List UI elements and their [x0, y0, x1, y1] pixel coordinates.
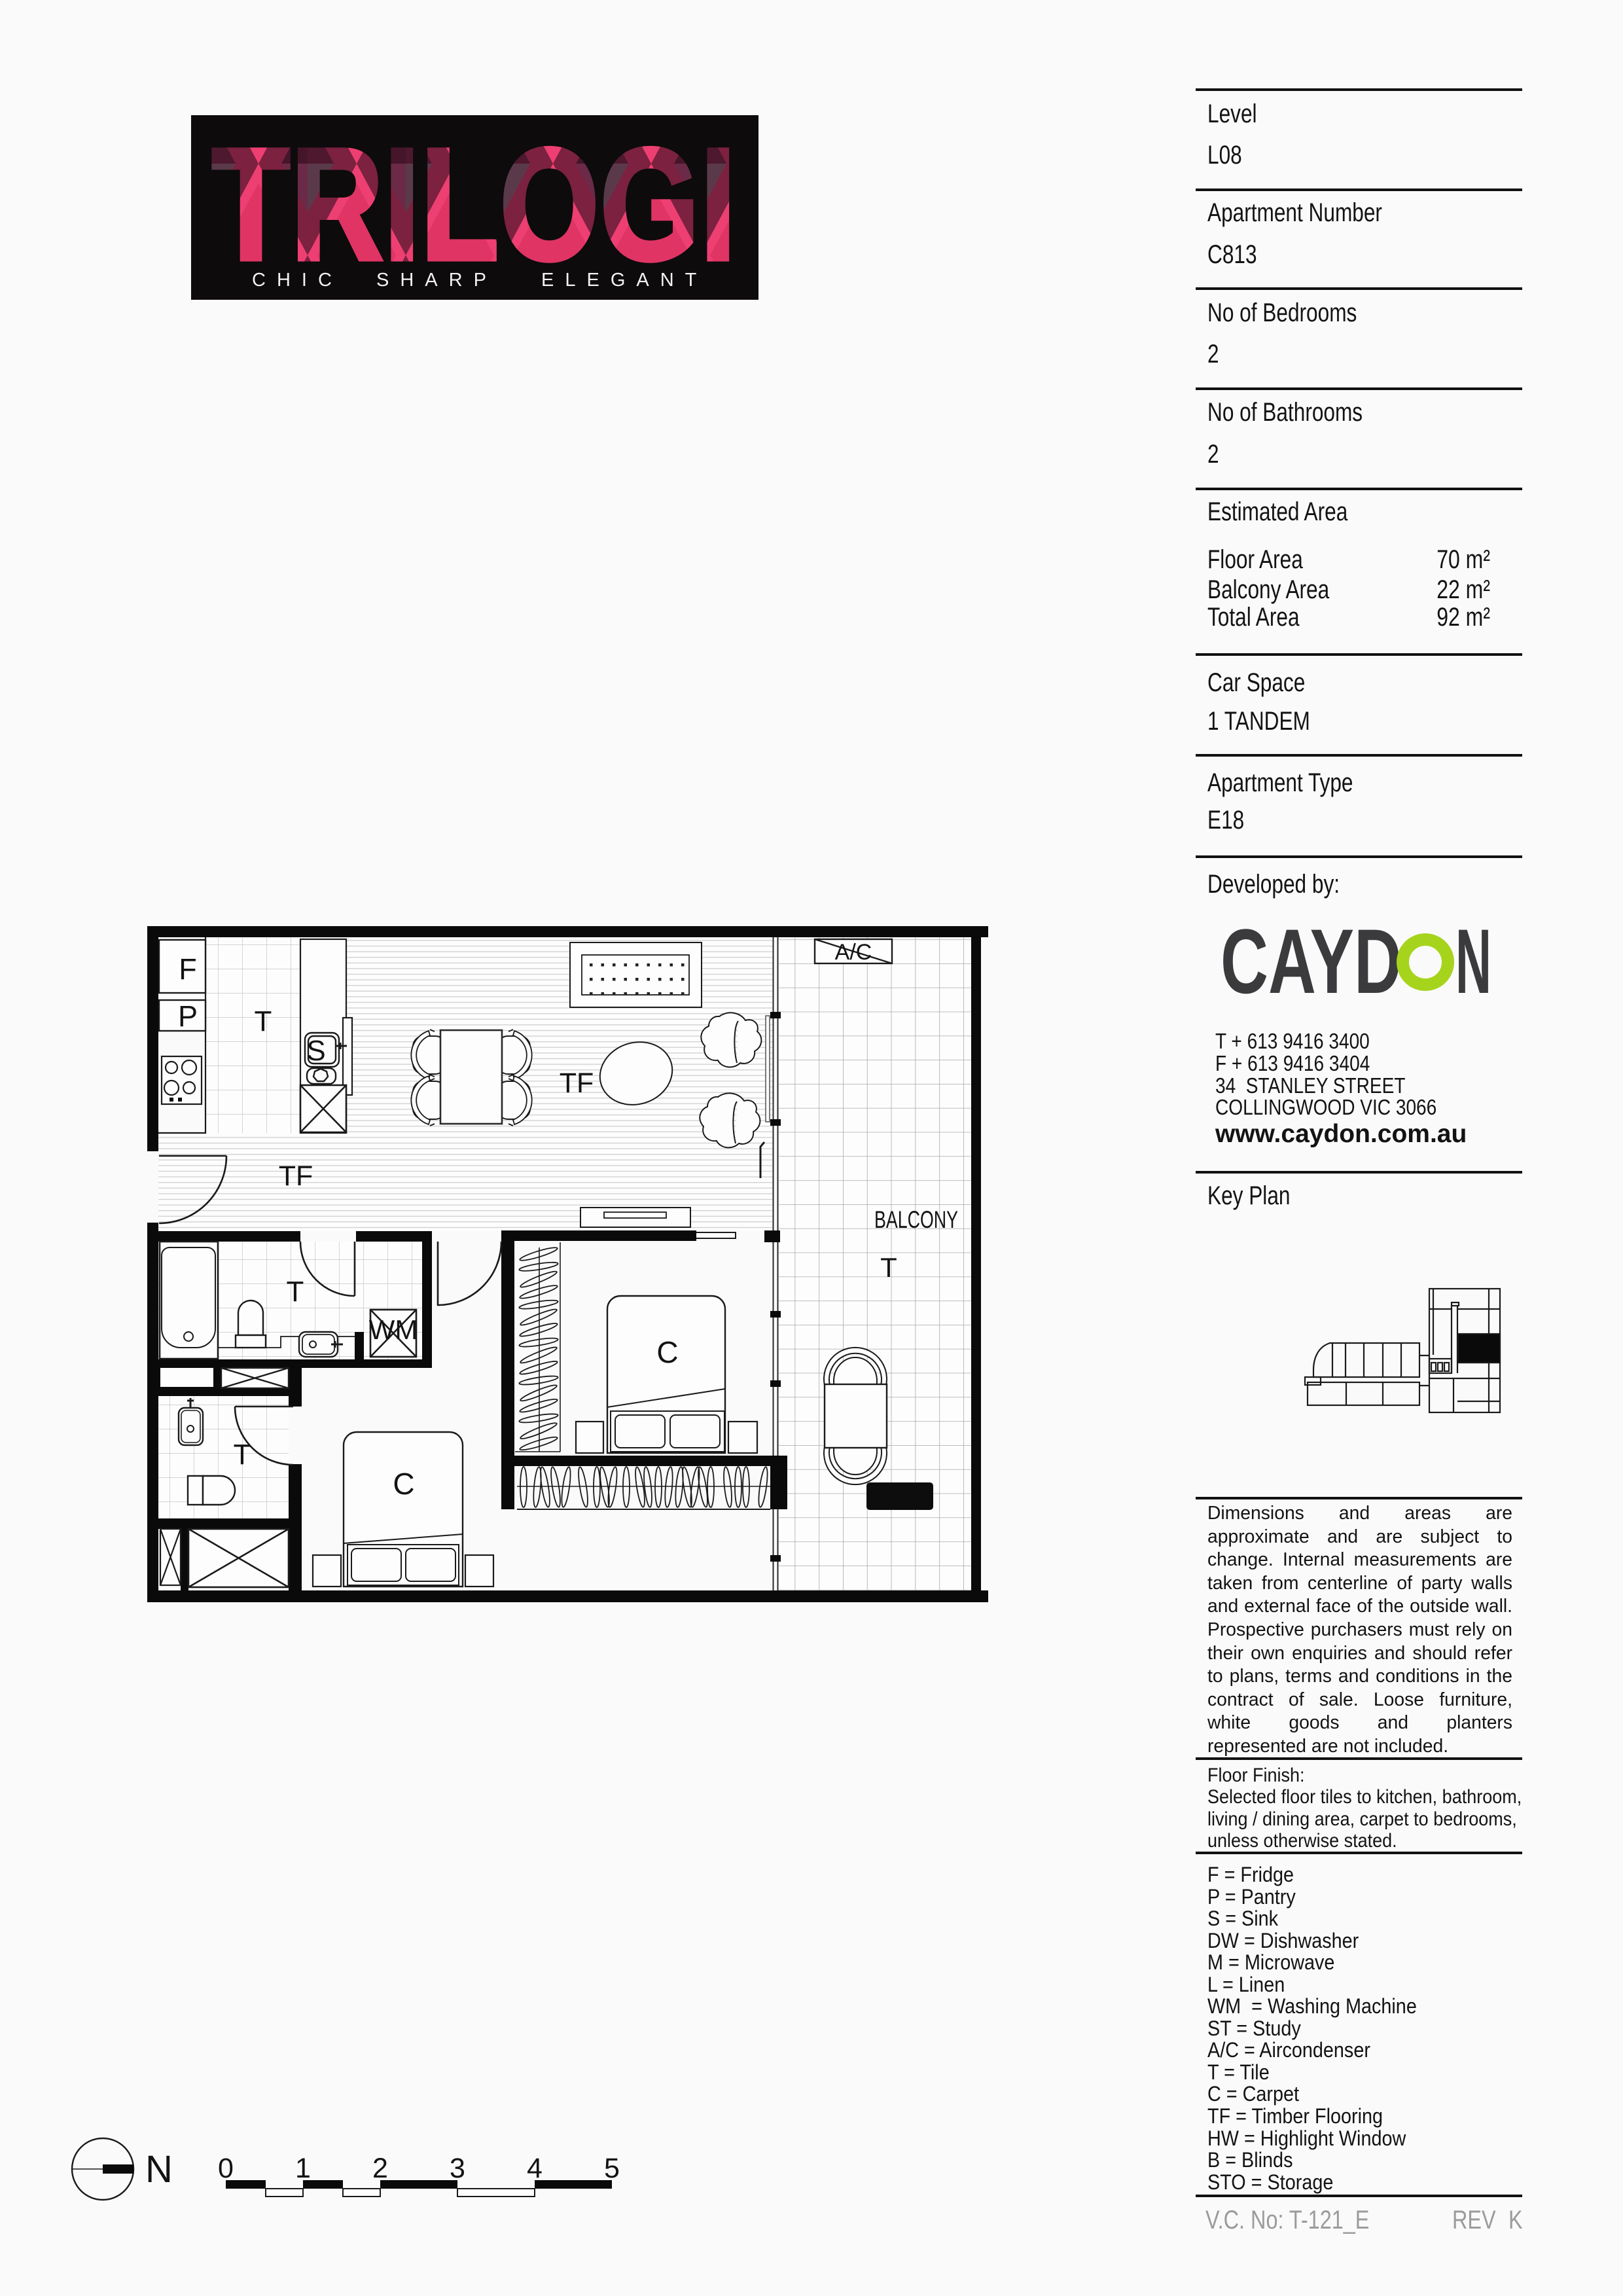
svg-text:4: 4: [527, 2153, 543, 2184]
svg-text:TF: TF: [560, 1067, 594, 1099]
svg-text:F: F: [179, 952, 197, 986]
svg-text:5: 5: [604, 2153, 620, 2184]
svg-text:TRILOGI: TRILOGI: [212, 116, 737, 293]
svg-text:T: T: [880, 1252, 897, 1283]
svg-text:C: C: [656, 1335, 678, 1369]
svg-text:CAYD: CAYD: [1221, 910, 1402, 1013]
svg-text:A/C: A/C: [835, 940, 872, 965]
svg-text:N: N: [145, 2148, 173, 2191]
svg-text:T: T: [287, 1276, 304, 1308]
svg-text:C: C: [393, 1467, 414, 1501]
svg-text:TF: TF: [279, 1160, 313, 1192]
svg-text:2: 2: [372, 2153, 388, 2184]
svg-text:S: S: [306, 1035, 325, 1067]
svg-text:P: P: [178, 999, 198, 1033]
svg-text:CHIC: CHIC: [252, 270, 343, 291]
svg-text:T: T: [234, 1439, 251, 1471]
svg-text:T: T: [255, 1005, 272, 1037]
svg-text:3: 3: [450, 2153, 465, 2184]
svg-text:0: 0: [218, 2153, 234, 2184]
svg-text:N: N: [1455, 910, 1491, 1013]
svg-text:WM: WM: [369, 1314, 418, 1345]
svg-text:ELEGANT: ELEGANT: [541, 270, 707, 291]
svg-text:SHARP: SHARP: [376, 270, 497, 291]
svg-text:1: 1: [295, 2153, 311, 2184]
svg-text:BALCONY: BALCONY: [874, 1206, 958, 1233]
